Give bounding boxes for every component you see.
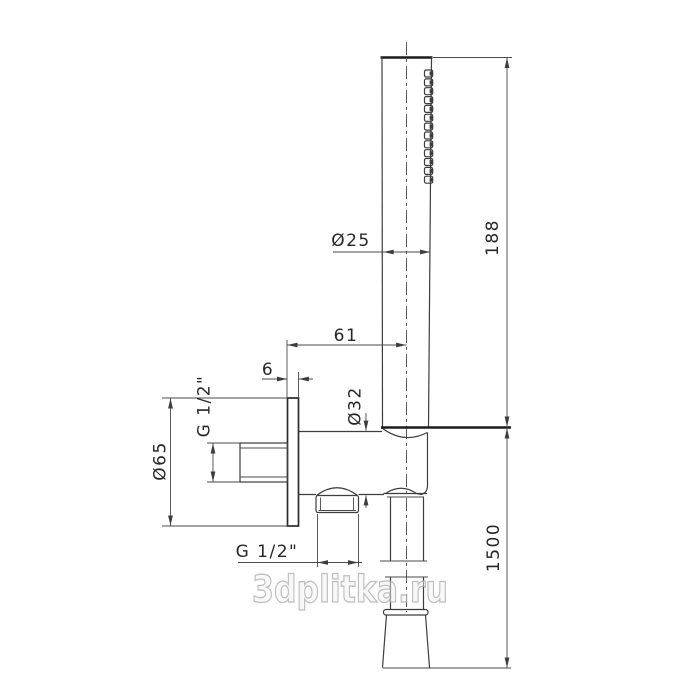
label-plate-diameter: Ø65 — [151, 441, 171, 481]
technical-drawing-page: Ø25 188 1500 61 6 Ø32 Ø65 — [0, 0, 700, 700]
nozzle — [425, 176, 434, 183]
label-wall-offset: 61 — [334, 326, 359, 346]
label-inlet-thread: G 1/2" — [195, 375, 215, 438]
nozzle — [425, 159, 434, 166]
dimension-wall-offset: 61 — [287, 326, 407, 347]
label-handle-diameter: Ø25 — [331, 231, 371, 251]
nozzle — [425, 123, 434, 130]
dimension-hose-length: 1500 — [484, 427, 509, 668]
nozzle — [425, 132, 434, 139]
drawing-canvas: Ø25 188 1500 61 6 Ø32 Ø65 — [0, 0, 700, 700]
dimension-handle-length: 188 — [483, 58, 509, 428]
holder-saddle — [382, 428, 428, 438]
wand-left-edge — [382, 58, 383, 428]
dimension-hose-thread: G 1/2" — [236, 542, 362, 565]
cone-fitting — [383, 615, 430, 668]
dimension-inlet-thread: G 1/2" — [195, 375, 216, 482]
label-plate-thickness: 6 — [262, 360, 274, 380]
nozzle — [425, 167, 434, 174]
watermark-text: 3dplitka.ru — [252, 568, 448, 611]
hose-upper — [391, 497, 424, 561]
label-hose-length: 1500 — [484, 523, 504, 572]
holder-bracket — [299, 428, 428, 495]
nozzle — [425, 141, 434, 148]
nozzle — [425, 150, 434, 157]
nozzle — [425, 114, 434, 121]
label-handle-length: 188 — [483, 219, 503, 256]
dimension-handle-diameter: Ø25 — [331, 231, 430, 254]
nozzle — [425, 105, 434, 112]
dimension-plate-diameter: Ø65 — [151, 398, 173, 526]
nut-dome — [317, 488, 358, 496]
inlet-nipple — [240, 443, 288, 482]
wall-plate — [288, 398, 299, 526]
hose-nut-outlet — [316, 488, 359, 513]
label-hose-thread: G 1/2" — [236, 542, 299, 562]
label-holder-diameter: Ø32 — [346, 386, 366, 426]
hose-nut-dome — [386, 488, 417, 493]
